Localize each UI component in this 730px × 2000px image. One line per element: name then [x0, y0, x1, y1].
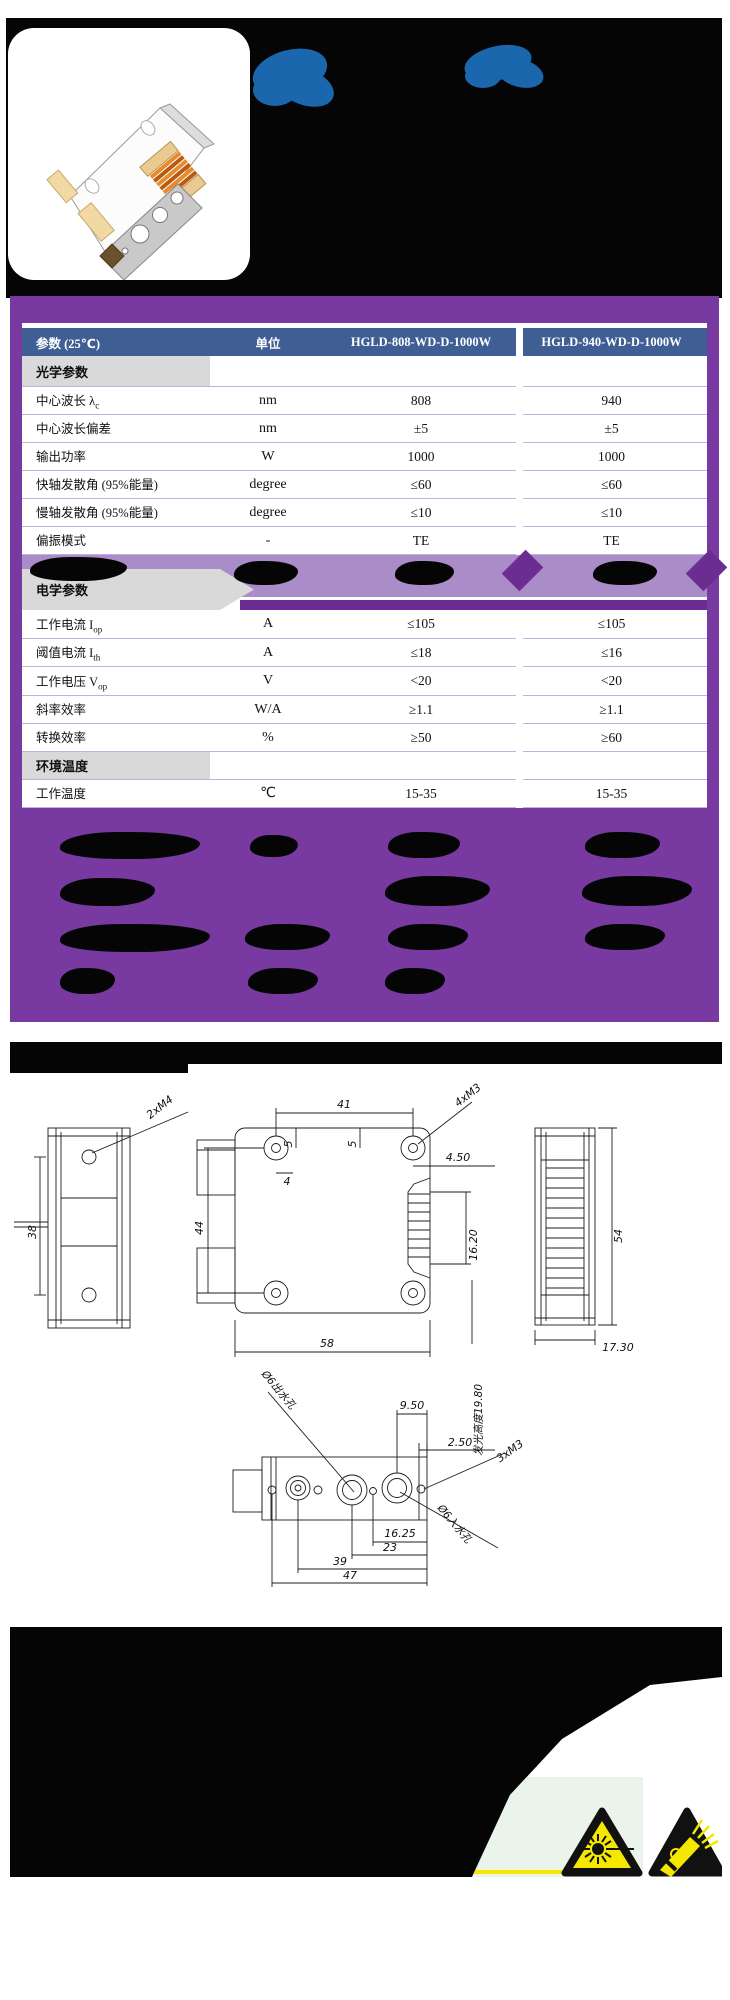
unit-cell: degree [210, 499, 326, 526]
value-cell-model-b: ≤60 [516, 471, 707, 498]
table-row: 快轴发散角 (95%能量)degree≤60≤60 [22, 471, 707, 499]
dim-44: 44 [193, 1221, 206, 1235]
table-body: 光学参数中心波长 λcnm808940中心波长偏差nm±5±5输出功率W1000… [22, 356, 707, 808]
table-row: 中心波长偏差nm±5±5 [22, 415, 707, 443]
param-label: 中心波长 λc [36, 390, 99, 411]
unit-cell: W [210, 443, 326, 470]
redacted-text-blob [385, 876, 490, 906]
value-cell-model-b: ≤10 [516, 499, 707, 526]
table-header-row: 参数 (25℃) 单位 HGLD-808-WD-D-1000W HGLD-940… [22, 328, 707, 356]
dim-1625: 16.25 [384, 1527, 416, 1540]
redacted-text-blob [60, 924, 210, 952]
outlet-hole-label: Ø6出水孔 [258, 1368, 298, 1412]
spec-table-panel: 参数 (25℃) 单位 HGLD-808-WD-D-1000W HGLD-940… [10, 296, 719, 1022]
value-cell-model-b: ±5 [516, 415, 707, 442]
table-row: 工作温度℃15-3515-35 [22, 780, 707, 808]
right-side-view: 54 17.30 [535, 1128, 634, 1354]
redacted-text-blob [60, 968, 115, 994]
header-unit: 单位 [210, 333, 326, 352]
value-cell-model-a: 1000 [326, 443, 516, 470]
redacted-heading-bar [10, 1042, 188, 1073]
redacted-text-blob [585, 832, 660, 858]
thread-label-2xm4: 2xM4 [144, 1093, 176, 1122]
section-label: 环境温度 [22, 752, 210, 779]
redacted-text-blob [245, 924, 330, 950]
front-view: 41 5 5 4 44 58 4xM3 4.50 16.20 发光高度19.80 [193, 1081, 495, 1456]
table-row: 工作电压 VopV<20<20 [22, 667, 707, 696]
dim-1730: 17.30 [602, 1341, 634, 1354]
value-cell-model-b: TE [516, 527, 707, 554]
unit-cell: A [210, 639, 326, 666]
param-label: 慢轴发散角 (95%能量) [36, 502, 158, 523]
inlet-hole-label: Ø6入水孔 [434, 1502, 474, 1546]
spec-table: 参数 (25℃) 单位 HGLD-808-WD-D-1000W HGLD-940… [22, 323, 707, 808]
diamond-ornament [686, 550, 728, 592]
emission-height-label: 发光高度19.80 [473, 1384, 485, 1456]
redacted-text-blob [585, 924, 665, 950]
dim-450: 4.50 [446, 1151, 471, 1164]
value-cell-model-b: ≤16 [516, 639, 707, 666]
redacted-text-blob [388, 832, 460, 858]
product-photo-card [8, 28, 250, 280]
table-row: 中心波长 λcnm808940 [22, 387, 707, 415]
value-cell-model-b: ≥60 [516, 724, 707, 751]
param-label: 斜率效率 [36, 699, 86, 720]
unit-cell: A [210, 610, 326, 638]
param-label: 偏振模式 [36, 530, 86, 551]
param-label: 转换效率 [36, 727, 86, 748]
unit-cell: - [210, 527, 326, 554]
unit-cell: V [210, 667, 326, 695]
section-label: 光学参数 [22, 356, 210, 386]
table-row: 慢轴发散角 (95%能量)degree≤10≤10 [22, 499, 707, 527]
dim-1620: 16.20 [467, 1229, 480, 1261]
value-cell-model-a: ±5 [326, 415, 516, 442]
table-row: 偏振模式-TETE [22, 527, 707, 555]
table-row: 阈值电流 IthA≤18≤16 [22, 639, 707, 667]
value-cell-model-a: <20 [326, 667, 516, 695]
unit-cell: degree [210, 471, 326, 498]
redacted-text-blob [60, 832, 200, 859]
redacted-text-blob [385, 968, 445, 994]
value-cell-model-b: <20 [516, 667, 707, 695]
dim-39: 39 [333, 1555, 347, 1568]
value-cell-model-a: ≤18 [326, 639, 516, 666]
dimension-drawings: 38 2xM4 41 5 5 4 44 58 4xM3 4. [0, 1080, 730, 1670]
dim-41: 41 [337, 1098, 351, 1111]
left-side-view: 38 2xM4 [14, 1093, 188, 1328]
redacted-text-blob [248, 968, 318, 994]
redacted-row: 电学参数 [22, 555, 707, 610]
value-cell-model-a: ≥1.1 [326, 696, 516, 723]
section-label: 电学参数 [36, 580, 88, 599]
param-label: 中心波长偏差 [36, 418, 111, 439]
header-model-b: HGLD-940-WD-D-1000W [516, 335, 707, 350]
value-cell-model-b: ≤105 [516, 610, 707, 638]
section-row-filler [210, 752, 707, 779]
dim-54: 54 [612, 1229, 625, 1243]
diamond-ornament [502, 550, 544, 592]
param-label: 快轴发散角 (95%能量) [36, 474, 158, 495]
product-photo [8, 28, 250, 280]
dim-23: 23 [383, 1541, 397, 1554]
dim-950: 9.50 [400, 1399, 425, 1412]
unit-cell: nm [210, 415, 326, 442]
dim-5a: 5 [282, 1141, 295, 1148]
table-row: 工作电流 IopA≤105≤105 [22, 610, 707, 639]
value-cell-model-a: TE [326, 527, 516, 554]
header-model-a: HGLD-808-WD-D-1000W [326, 335, 516, 350]
value-cell-model-a: ≤105 [326, 610, 516, 638]
dim-38: 38 [26, 1225, 39, 1239]
redacted-logo-blob-1 [245, 42, 345, 114]
redacted-text-blob [582, 876, 692, 906]
unit-cell: % [210, 724, 326, 751]
value-cell-model-b: 940 [516, 387, 707, 414]
dim-47: 47 [343, 1569, 357, 1582]
value-cell-model-b: ≥1.1 [516, 696, 707, 723]
redacted-logo-blob-2 [458, 38, 550, 96]
section-row-filler [210, 356, 707, 386]
dim-250: 2.50 [448, 1436, 473, 1449]
redacted-text-blob [250, 835, 298, 857]
value-cell-model-a: ≥50 [326, 724, 516, 751]
param-label: 阈值电流 Ith [36, 642, 100, 663]
thread-label-3xm3: 3xM3 [494, 1437, 526, 1465]
redacted-text-blob [60, 878, 155, 906]
table-row: 输出功率W10001000 [22, 443, 707, 471]
dim-4: 4 [284, 1175, 291, 1188]
value-cell-model-a: ≤10 [326, 499, 516, 526]
param-label: 工作电流 Iop [36, 614, 102, 635]
unit-cell: ℃ [210, 780, 326, 807]
redacted-notes-block [10, 1627, 722, 1877]
table-row: 转换效率%≥50≥60 [22, 724, 707, 752]
value-cell-model-b: 15-35 [516, 780, 707, 807]
dim-5b: 5 [346, 1141, 359, 1148]
param-label: 工作温度 [36, 783, 86, 804]
table-section-row: 光学参数 [22, 356, 707, 387]
value-cell-model-a: 808 [326, 387, 516, 414]
redacted-text-blob [388, 924, 468, 950]
dim-58: 58 [320, 1337, 334, 1350]
param-label: 工作电压 Vop [36, 671, 107, 692]
table-section-row: 环境温度 [22, 752, 707, 780]
band-strip [240, 600, 707, 610]
value-cell-model-a: ≤60 [326, 471, 516, 498]
value-cell-model-a: 15-35 [326, 780, 516, 807]
unit-cell: nm [210, 387, 326, 414]
param-label: 输出功率 [36, 446, 86, 467]
value-cell-model-b: 1000 [516, 443, 707, 470]
header-param: 参数 (25℃) [22, 333, 210, 352]
table-row: 斜率效率W/A≥1.1≥1.1 [22, 696, 707, 724]
unit-cell: W/A [210, 696, 326, 723]
